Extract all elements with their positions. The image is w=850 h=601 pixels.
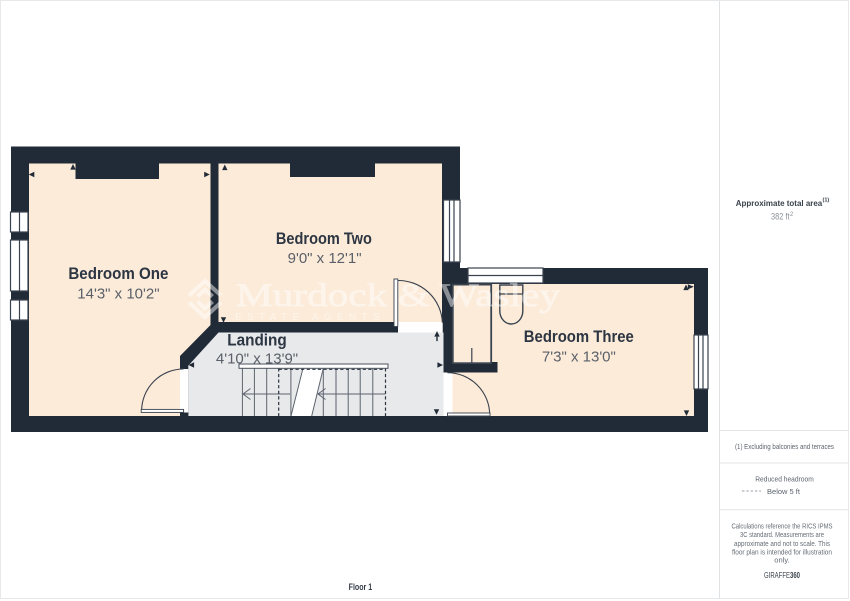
svg-text:(1) Excluding balconies and te: (1) Excluding balconies and terraces [735, 442, 834, 451]
svg-text:Murdock & Wasley: Murdock & Wasley [236, 278, 561, 314]
svg-text:ESTATE AGENTS: ESTATE AGENTS [235, 312, 385, 323]
svg-text:Reduced headroom: Reduced headroom [755, 475, 814, 484]
svg-text:9'0" x 12'1": 9'0" x 12'1" [288, 250, 362, 267]
svg-text:Bedroom Two: Bedroom Two [276, 230, 372, 248]
svg-text:approximate and not to scale.: approximate and not to scale. This [734, 539, 830, 548]
svg-text:(1): (1) [823, 198, 830, 204]
svg-text:Below 5 ft: Below 5 ft [767, 487, 801, 496]
svg-text:14'3" x 10'2": 14'3" x 10'2" [77, 286, 159, 303]
svg-text:only.: only. [774, 556, 789, 565]
svg-text:4'10" x 13'9": 4'10" x 13'9" [216, 350, 298, 367]
svg-text:382 ft: 382 ft [771, 212, 790, 222]
svg-text:GIRAFFE360: GIRAFFE360 [764, 571, 800, 580]
svg-text:Landing: Landing [227, 332, 287, 350]
svg-text:3C standard. Measurements are: 3C standard. Measurements are [740, 530, 824, 539]
svg-text:Approximate total area: Approximate total area [736, 199, 823, 208]
svg-text:Bedroom One: Bedroom One [68, 265, 168, 283]
svg-text:7'3" x 13'0": 7'3" x 13'0" [542, 348, 616, 365]
svg-text:Floor 1: Floor 1 [349, 582, 373, 593]
svg-text:Bedroom Three: Bedroom Three [524, 328, 634, 346]
svg-text:Calculations reference the RIC: Calculations reference the RICS IPMS [732, 521, 833, 530]
